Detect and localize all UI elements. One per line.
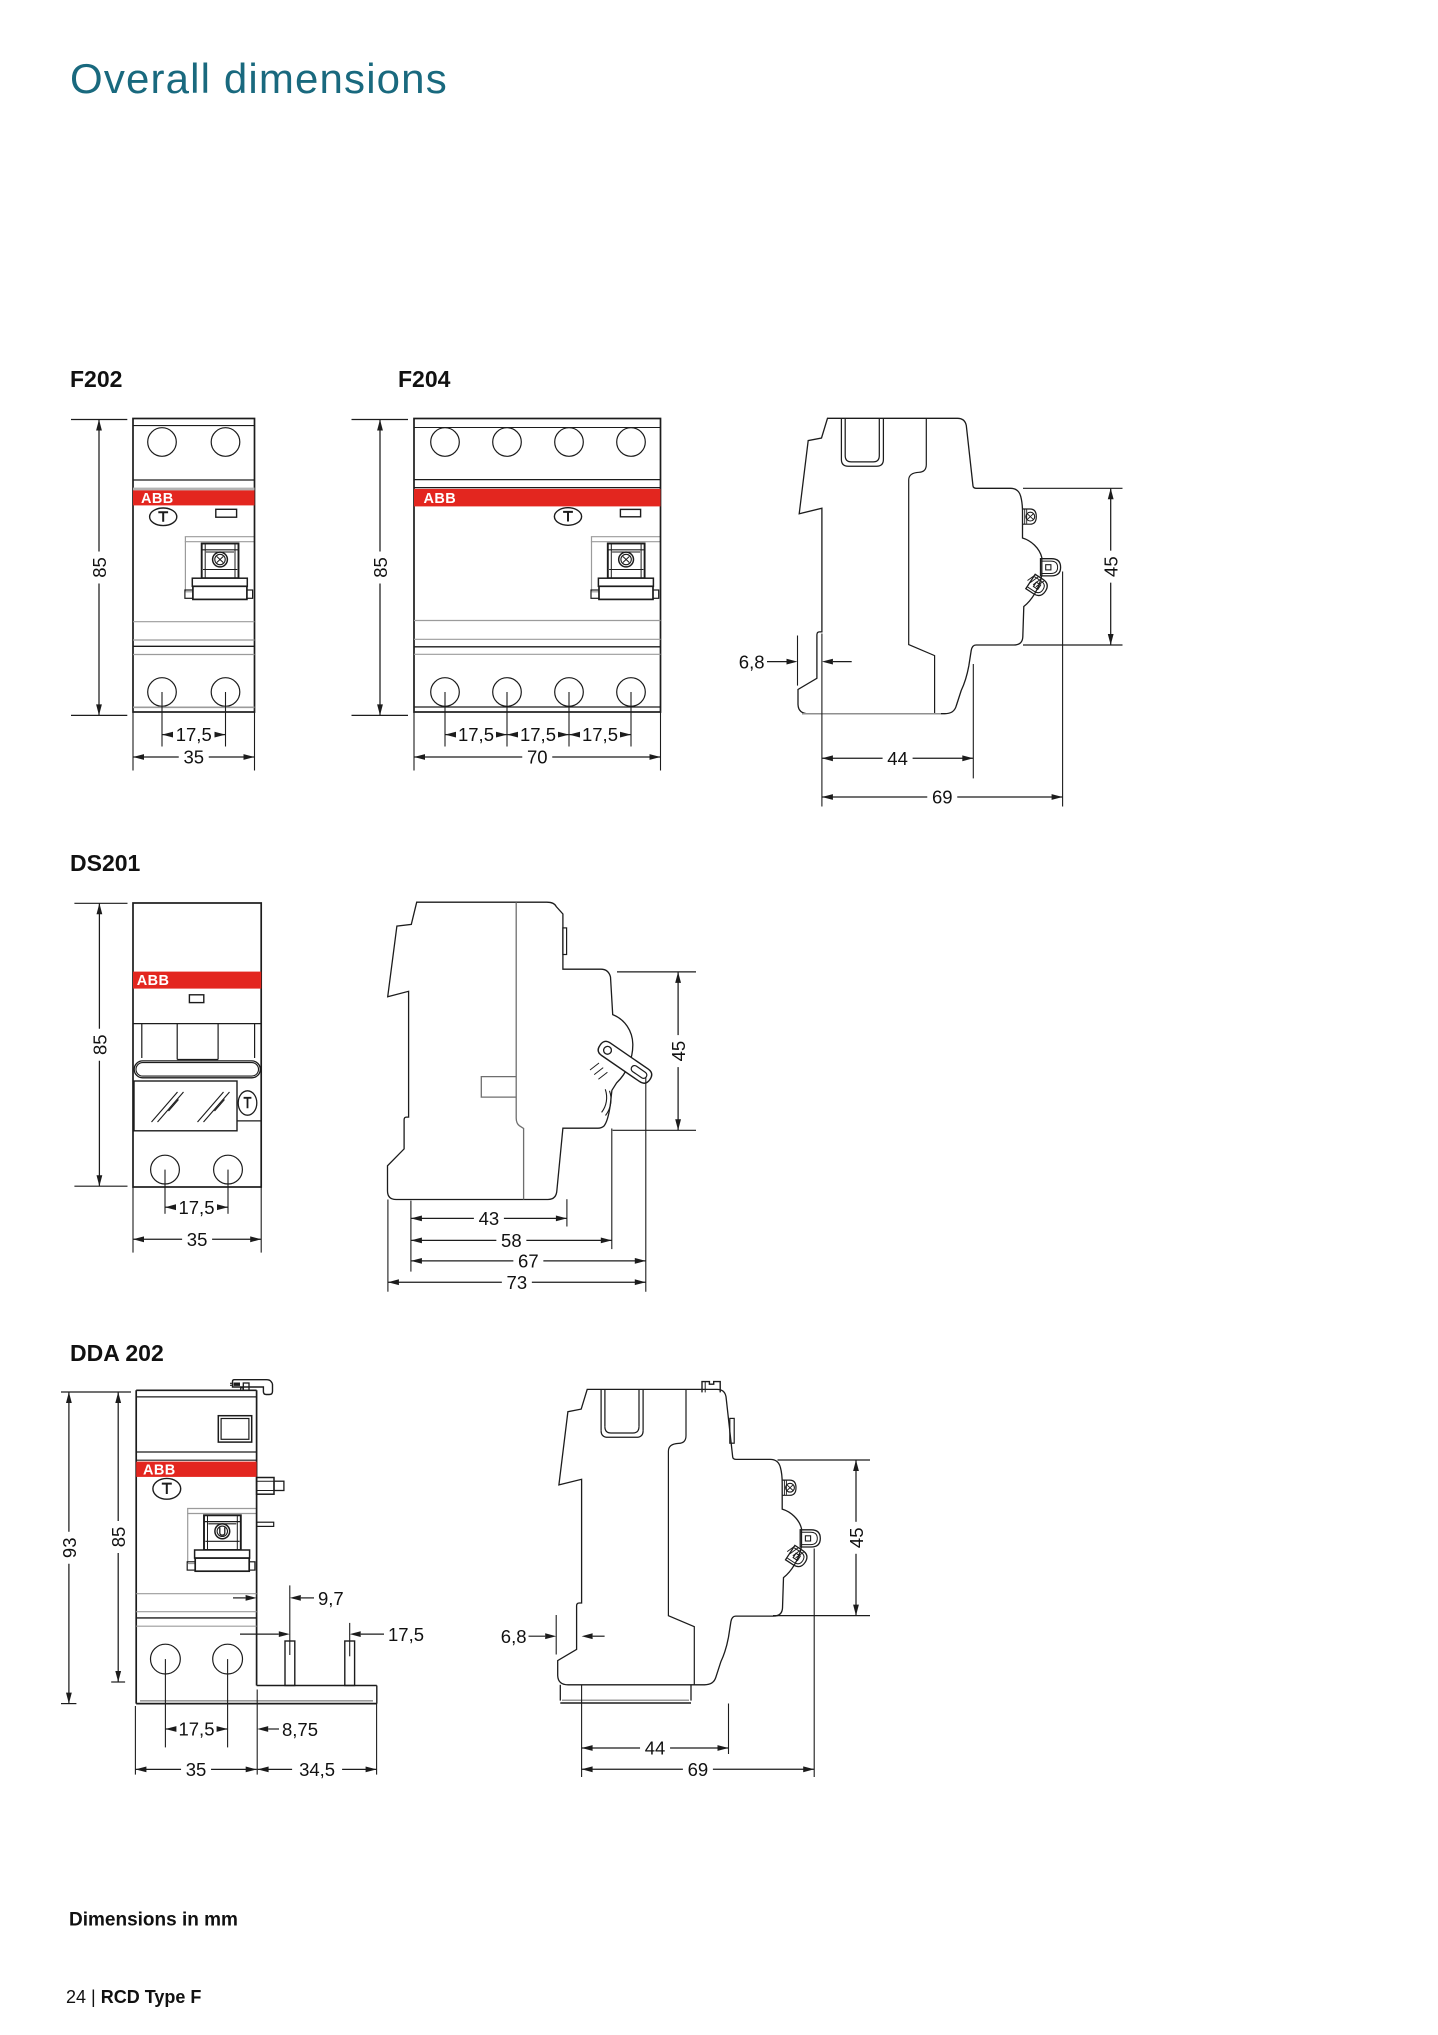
svg-text:F204: F204 [398, 366, 451, 392]
svg-text:6,8: 6,8 [739, 652, 765, 673]
svg-text:85: 85 [108, 1527, 129, 1548]
svg-text:44: 44 [645, 1738, 666, 1759]
svg-text:58: 58 [501, 1230, 522, 1251]
svg-text:35: 35 [187, 1229, 208, 1250]
svg-text:17,5: 17,5 [458, 724, 494, 745]
svg-text:DS201: DS201 [70, 850, 141, 876]
svg-text:ABB: ABB [143, 1463, 176, 1479]
svg-text:44: 44 [887, 748, 908, 769]
svg-text:34,5: 34,5 [299, 1759, 335, 1780]
svg-text:17,5: 17,5 [176, 724, 212, 745]
svg-text:35: 35 [186, 1759, 207, 1780]
svg-text:70: 70 [527, 747, 548, 768]
svg-text:24 | RCD Type F: 24 | RCD Type F [66, 1987, 201, 2007]
svg-text:45: 45 [668, 1041, 689, 1062]
svg-text:17,5: 17,5 [388, 1624, 424, 1645]
svg-text:Overall dimensions: Overall dimensions [70, 55, 448, 102]
svg-text:67: 67 [518, 1251, 539, 1272]
svg-text:ABB: ABB [424, 491, 457, 507]
svg-text:85: 85 [89, 557, 110, 578]
svg-text:8,75: 8,75 [282, 1719, 318, 1740]
svg-text:69: 69 [932, 787, 953, 808]
svg-text:69: 69 [688, 1759, 709, 1780]
svg-text:9,7: 9,7 [318, 1588, 344, 1609]
svg-text:17,5: 17,5 [582, 724, 618, 745]
svg-text:85: 85 [370, 557, 391, 578]
svg-text:17,5: 17,5 [178, 1719, 214, 1740]
svg-text:6,8: 6,8 [501, 1626, 527, 1647]
svg-text:Dimensions in mm: Dimensions in mm [69, 1910, 238, 1931]
svg-text:73: 73 [507, 1272, 528, 1293]
svg-text:45: 45 [1101, 556, 1122, 577]
svg-text:17,5: 17,5 [178, 1197, 214, 1218]
svg-text:17,5: 17,5 [520, 724, 556, 745]
svg-text:DDA 202: DDA 202 [70, 1340, 164, 1366]
svg-text:ABB: ABB [141, 491, 174, 507]
svg-text:45: 45 [846, 1528, 867, 1549]
svg-text:F202: F202 [70, 366, 122, 392]
svg-text:85: 85 [89, 1034, 110, 1055]
svg-text:43: 43 [479, 1208, 500, 1229]
svg-text:93: 93 [59, 1538, 80, 1559]
svg-text:ABB: ABB [137, 973, 170, 989]
svg-text:35: 35 [183, 747, 204, 768]
